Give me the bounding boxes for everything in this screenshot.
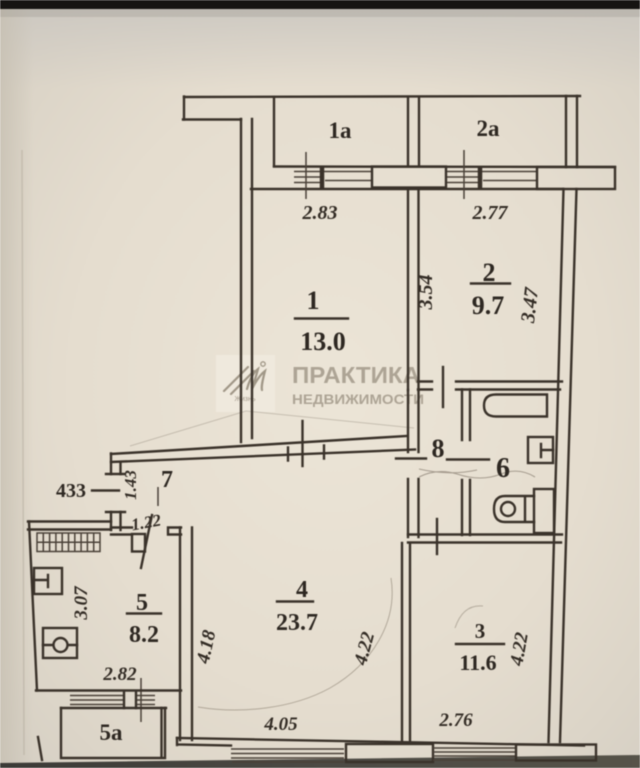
svg-text:6: 6 — [496, 453, 510, 484]
svg-text:2.77: 2.77 — [472, 202, 509, 224]
svg-text:2.83: 2.83 — [302, 202, 338, 224]
svg-text:8.2: 8.2 — [129, 622, 159, 648]
svg-text:2а: 2а — [477, 116, 501, 141]
svg-text:433: 433 — [56, 480, 86, 502]
svg-text:3: 3 — [475, 619, 486, 643]
svg-text:3.54: 3.54 — [415, 275, 437, 311]
svg-text:9.7: 9.7 — [472, 291, 505, 320]
svg-text:5а: 5а — [100, 720, 124, 745]
svg-text:3.47: 3.47 — [517, 286, 543, 325]
svg-text:13.0: 13.0 — [300, 327, 346, 356]
svg-text:ПРАКТИКА: ПРАКТИКА — [292, 362, 420, 388]
svg-text:4: 4 — [296, 577, 308, 603]
svg-text:3.07: 3.07 — [71, 585, 92, 621]
svg-text:4.05: 4.05 — [263, 714, 298, 735]
svg-text:23.7: 23.7 — [276, 610, 318, 636]
svg-text:2.76: 2.76 — [438, 710, 473, 731]
svg-text:8: 8 — [432, 434, 445, 463]
svg-text:2.82: 2.82 — [102, 664, 137, 685]
svg-text:НЕДВИЖИМОСТИ: НЕДВИЖИМОСТИ — [292, 391, 424, 407]
svg-text:1а: 1а — [329, 118, 353, 143]
svg-text:1.43: 1.43 — [121, 470, 140, 500]
svg-text:7: 7 — [161, 467, 173, 493]
svg-text:1: 1 — [307, 286, 320, 315]
svg-text:5: 5 — [136, 590, 148, 616]
svg-text:11.6: 11.6 — [459, 650, 496, 675]
